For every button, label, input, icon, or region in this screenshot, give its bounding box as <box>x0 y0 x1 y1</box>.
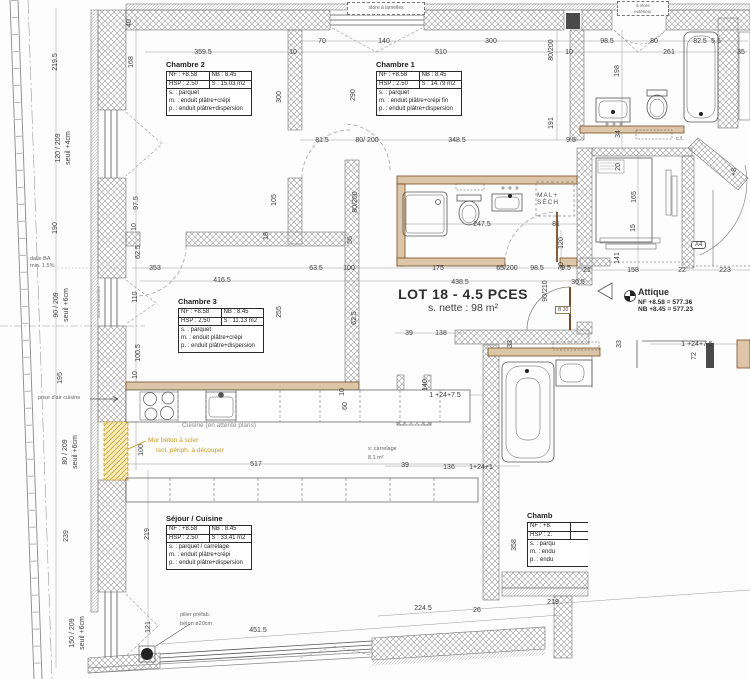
room-nf: NF : +8.58 <box>179 309 222 317</box>
dimension-label: 10 <box>289 49 297 56</box>
wall-saw-note-2: Isol. périph. à découper <box>156 447 224 454</box>
washbasin <box>492 194 522 211</box>
room-nb: NB : 8.45 <box>222 309 264 317</box>
room-nf: NF : +8.58 <box>167 526 210 534</box>
dimension-label: 300 <box>485 38 497 45</box>
dimension-label: 223 <box>719 267 731 274</box>
dimension-label: 219 <box>144 528 151 540</box>
pillar-note-1: pilier préfab. <box>180 612 210 618</box>
dimension-label: 80 <box>650 38 658 45</box>
dimension-label: 9.5 <box>566 137 576 144</box>
pillar-note-2: béton ø20cm <box>180 621 212 627</box>
fire-rating-label: B 30 <box>555 306 571 314</box>
room-floor: s. : parquet <box>181 327 261 335</box>
bathroom2-fixtures <box>502 342 599 462</box>
dimension-label: 191 <box>548 117 555 129</box>
room-nf: NF : +8.58 <box>167 72 210 80</box>
room-name: Chamb <box>527 511 588 521</box>
dimension-label: 353 <box>149 265 161 272</box>
lot-title-block: LOT 18 - 4.5 PCES s. nette : 98 m² <box>388 286 538 314</box>
south-facade <box>88 624 545 673</box>
dimension-label: seuil +6cm <box>63 288 70 322</box>
dimension-label: 60 <box>342 402 349 410</box>
dimension-label: 438.5 <box>451 279 469 286</box>
dimension-label: 219 <box>547 599 559 606</box>
dimension-label: 15 <box>630 224 637 232</box>
slab-note-2: min. 1.5% <box>30 263 54 269</box>
dimension-label: 105 <box>271 194 278 206</box>
dimension-label: 100.5 <box>135 344 142 362</box>
room-walls: m. : enduit plâtre+crépi fin <box>379 98 459 106</box>
toilet-tank <box>457 195 481 201</box>
dimension-label: 62.5 <box>351 311 358 325</box>
room-floor: s. : parquet <box>169 90 249 98</box>
dimension-label: 40 <box>126 19 133 27</box>
dimension-label: 39 <box>401 462 409 469</box>
dimension-label: 34 <box>615 130 622 138</box>
room-hsp: HSP : 2.50 <box>179 318 222 326</box>
dimension-label: 10 <box>339 388 346 396</box>
room-nb: NB : 8.45 <box>210 72 252 80</box>
room-ceiling: p. : enduit plâtre+dispersion <box>169 106 249 114</box>
dimension-label: 121 <box>145 621 152 633</box>
room-hsp: HSP : 2.50 <box>377 81 420 89</box>
blind-label-left-wall: store à lamelles <box>96 286 101 318</box>
room-name: Chambre 3 <box>178 297 264 307</box>
dimension-label: 9.5 <box>561 265 571 272</box>
room-floor: s. : parquet / carrelage <box>169 544 249 552</box>
room-hsp: HSP : 2.50 <box>167 81 210 89</box>
dimension-label: 10 <box>565 49 573 56</box>
dimension-label: 140 <box>378 38 390 45</box>
room-name: Chambre 2 <box>166 60 252 70</box>
dimension-label: 100 <box>343 265 355 272</box>
dimension-label: 1 +24+7.5 <box>681 341 713 348</box>
room-surface: S : 15.03 m2 <box>210 81 252 89</box>
dimension-label: 510 <box>435 49 447 56</box>
dimension-label: 30.5 <box>571 279 585 286</box>
room-floor: s. : parqu <box>530 541 588 549</box>
lot-net-area: s. nette : 98 m² <box>388 302 538 314</box>
stair-run-label: A4 <box>691 241 706 249</box>
blind-box-top-right: à store extérieur <box>617 1 669 16</box>
dimension-label: 81 <box>552 221 560 228</box>
dimension-label: 80/200 <box>352 191 359 213</box>
kitchen-air-intake-label: prise d'air cuisine <box>38 395 80 401</box>
dimension-label: 70 <box>318 38 326 45</box>
room-ceiling: p. : enduit plâtre+dispersion <box>379 106 459 114</box>
room-walls: m. : endu <box>530 549 588 557</box>
dimension-label: 63.5 <box>309 265 323 272</box>
dimension-label: 1 +24+7.5 <box>429 392 461 399</box>
dimension-label: 517 <box>250 461 262 468</box>
dimension-label: 35 <box>737 49 745 56</box>
room-floor: s. : parquet <box>379 90 459 98</box>
room-surface: S : 14.79 m2 <box>420 81 462 89</box>
dimension-label: 451.5 <box>249 627 267 634</box>
tiling-note-1: s: carrelage <box>368 446 397 452</box>
dimension-label: 10 <box>131 223 138 231</box>
room-info-chambre3: Chambre 3 NF : +8.58NB : 8.45 HSP : 2.50… <box>178 297 264 353</box>
direction-triangle-icon <box>598 283 612 299</box>
dimension-label: 33 <box>507 340 514 348</box>
dimension-label: 97.5 <box>133 196 140 210</box>
dimension-label: 82.5 <box>693 38 707 45</box>
dimension-label: 141 <box>614 252 621 264</box>
dimension-label: 72 <box>691 352 698 360</box>
dimension-label: 65/200 <box>496 265 518 272</box>
dimension-label: 10 <box>132 371 139 379</box>
attique-nb: NB +8.45 = 577.23 <box>638 306 693 313</box>
dimension-label: 359.5 <box>194 49 212 56</box>
dimension-label: 62.5 <box>135 245 142 259</box>
room-ceiling: p. : enduit plâtre+dispersion <box>169 560 249 568</box>
dimension-label: 138 <box>435 330 447 337</box>
dimension-label: 150 / 209 <box>69 618 76 647</box>
tiling-note-2: 8.1 m² <box>368 455 384 461</box>
dimension-label: 219.5 <box>52 53 59 71</box>
dimension-label: 56 <box>347 236 354 244</box>
dimension-label: 80/200 <box>548 39 555 61</box>
room-walls: m. : enduit plâtre+crépi <box>181 335 261 343</box>
wall-saw-note-1: Mur béton à scier <box>148 437 198 444</box>
dimension-label: 20 <box>615 163 622 171</box>
dimension-label: 175 <box>432 265 444 272</box>
room-surface: S : 11.13 m2 <box>222 318 264 326</box>
level-marker-icon <box>625 291 636 302</box>
washer-dryer-label: MAL+ SÉCH <box>537 183 573 215</box>
dimension-label: 18 <box>263 232 270 240</box>
dimension-label: 98.5 <box>600 38 614 45</box>
dimension-label: 190 <box>52 222 59 234</box>
room-info-chambre-cut: Chamb NF : +8. HSP : 2. s. : parqu m. : … <box>527 511 588 567</box>
dimension-label: 168 <box>128 56 135 68</box>
bathtub <box>502 362 554 462</box>
dimension-label: 239 <box>63 530 70 542</box>
dimension-label: 80 / 209 <box>62 439 69 464</box>
room-name: Chambre 1 <box>376 60 462 70</box>
dimension-label: 120 / 209 <box>55 133 62 162</box>
dimension-label: 120 <box>558 237 565 249</box>
room-nb: NB : 8.45 <box>420 72 462 80</box>
attique-level-block: Attique NF +8.58 = 577.36 NB +8.45 = 577… <box>638 287 693 313</box>
dimension-label: 165 <box>631 191 638 203</box>
room-hsp: HSP : 2. <box>528 532 571 540</box>
dimension-label: 21 <box>583 267 591 274</box>
room-info-chambre1: Chambre 1 NF : +8.58NB : 8.45 HSP : 2.50… <box>376 60 462 116</box>
room-info-sejour: Séjour / Cuisine NF : +8.58NB : 8.45 HSP… <box>166 514 252 570</box>
dimension-label: 1+24+1 <box>469 464 493 471</box>
room-nf: NF : +8. <box>528 523 571 531</box>
dimension-label: 348.5 <box>448 137 466 144</box>
floor-plan-drawing: 7014030098.58082.55.5359.510510102613521… <box>0 0 750 679</box>
slab-note-1: dalle BA <box>30 256 51 262</box>
attique-nf: NF +8.58 = 577.36 <box>638 299 693 306</box>
dimension-label: 98.5 <box>530 265 544 272</box>
kitchen-counter <box>126 390 478 502</box>
dimension-label: 224.5 <box>414 605 432 612</box>
dimension-label: seuil +6cm <box>72 435 79 469</box>
dimension-label: 416.5 <box>213 277 231 284</box>
room-ceiling: p. : enduit plâtre+dispersion <box>181 343 261 351</box>
room-surface: S : 33.41 m2 <box>210 535 252 543</box>
attique-name: Attique <box>638 287 693 297</box>
bathroom1-fixtures <box>403 184 522 236</box>
lot-title: LOT 18 - 4.5 PCES <box>388 286 538 302</box>
room-nf: NF : +8.58 <box>377 72 420 80</box>
floor-plan-canvas: 7014030098.58082.55.5359.510510102613521… <box>0 0 750 679</box>
dimension-label: 300 <box>276 91 283 103</box>
blind-box-top-left: store à lamelles <box>347 2 425 15</box>
cf-label: c.f. <box>676 136 683 142</box>
bathtub <box>684 32 718 122</box>
dimension-label: 358 <box>511 539 518 551</box>
dimension-label: 140 <box>422 379 429 391</box>
dimension-label: 290 <box>350 89 357 101</box>
dimension-label: 255 <box>276 306 283 318</box>
dimension-label: 22 <box>678 267 686 274</box>
shower-tray <box>403 192 447 236</box>
dimension-label: 247.5 <box>473 221 491 228</box>
room-walls: m. : enduit plâtre+crépi <box>169 552 249 560</box>
property-boundary-line <box>10 0 52 679</box>
room-ceiling: p. : endu <box>530 557 588 565</box>
dimension-label: 100 <box>138 444 145 456</box>
room-name: Séjour / Cuisine <box>166 514 252 524</box>
room-walls: m. : enduit plâtre+crépi <box>169 98 249 106</box>
dimension-label: 198 <box>614 65 621 77</box>
room-nb: NB : 8.45 <box>210 526 252 534</box>
dimension-label: 33 <box>616 340 623 348</box>
dimension-label: 90 / 209 <box>53 292 60 317</box>
kitchen-pending-note: Cuisine (en attente plans) <box>182 422 256 429</box>
dimension-label: 110 <box>132 291 139 302</box>
pillar <box>141 648 153 660</box>
dimension-label: 26 <box>473 607 481 614</box>
dimension-label: 158 <box>627 267 639 274</box>
dimension-label: seuil +4cm <box>65 131 72 165</box>
wall-to-saw-highlight <box>104 422 128 480</box>
dimension-label: 5.5 <box>711 38 721 45</box>
dimension-label: 81.5 <box>315 137 329 144</box>
room-hsp: HSP : 2.50 <box>167 535 210 543</box>
dimension-label: +8 <box>731 168 738 176</box>
dimension-label: 261 <box>663 49 675 56</box>
room-info-chambre2: Chambre 2 NF : +8.58NB : 8.45 HSP : 2.50… <box>166 60 252 116</box>
dimension-label: seuil +6cm <box>79 616 86 650</box>
dimension-label: 90/210 <box>542 280 549 302</box>
dimension-label: 136 <box>443 464 455 471</box>
dimension-label: 80/ 200 <box>355 137 378 144</box>
dimension-label: 39 <box>405 330 413 337</box>
dimension-label: 195 <box>57 372 64 384</box>
